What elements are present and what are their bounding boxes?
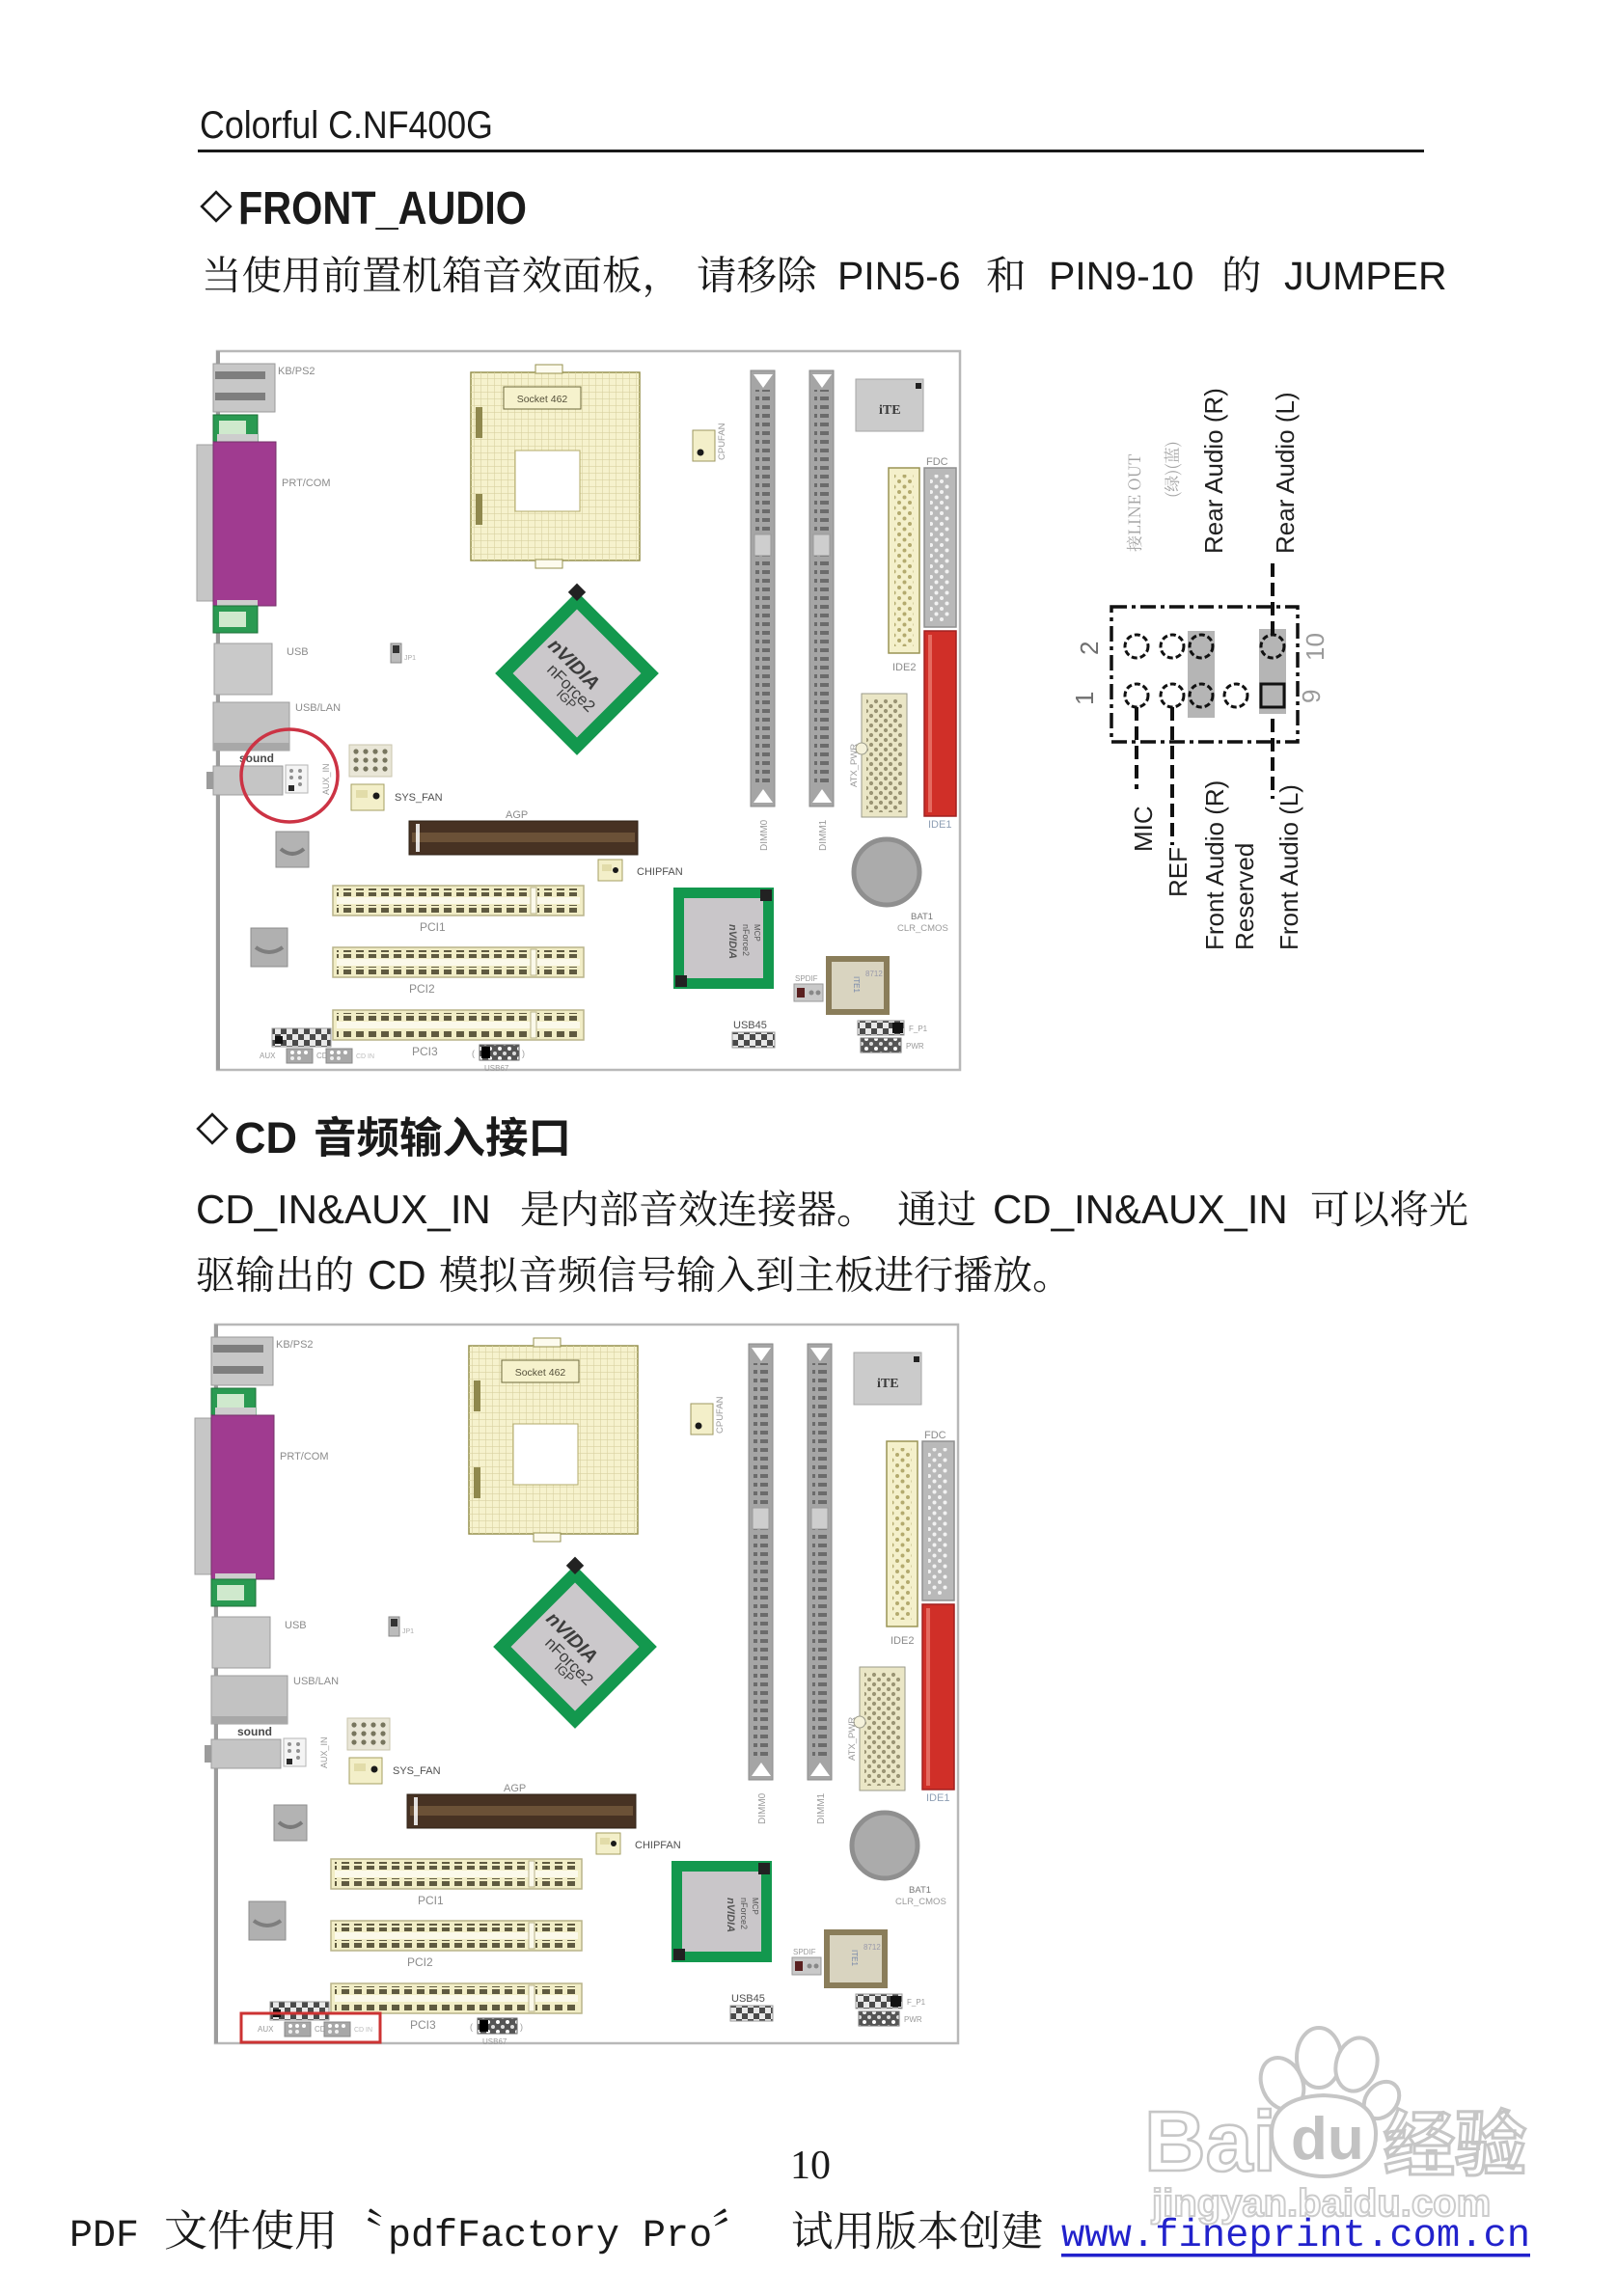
svg-text:CD: CD (234, 1113, 297, 1162)
svg-text:Rear Audio (L): Rear Audio (L) (1271, 392, 1300, 554)
svg-text:Front Audio (R): Front Audio (R) (1200, 780, 1229, 950)
svg-text:du: du (1291, 2106, 1364, 2173)
svg-text:2: 2 (1075, 642, 1104, 655)
svg-text:Reserved: Reserved (1230, 843, 1259, 950)
svg-text:REF: REF (1164, 847, 1192, 897)
svg-text:1: 1 (1070, 692, 1099, 705)
svg-text:FRONT_AUDIO: FRONT_AUDIO (238, 183, 527, 234)
svg-text:MIC: MIC (1129, 806, 1158, 852)
svg-text:9: 9 (1297, 690, 1326, 703)
svg-text:Bai: Bai (1144, 2093, 1276, 2189)
svg-text:10: 10 (790, 2144, 831, 2188)
svg-text:Colorful C.NF400G: Colorful C.NF400G (200, 104, 493, 147)
svg-text:Front Audio (L): Front Audio (L) (1274, 784, 1303, 950)
svg-text:jingyan.baidu.com: jingyan.baidu.com (1151, 2182, 1491, 2225)
svg-text:Rear Audio (R): Rear Audio (R) (1199, 388, 1228, 554)
svg-text:10: 10 (1301, 633, 1329, 661)
